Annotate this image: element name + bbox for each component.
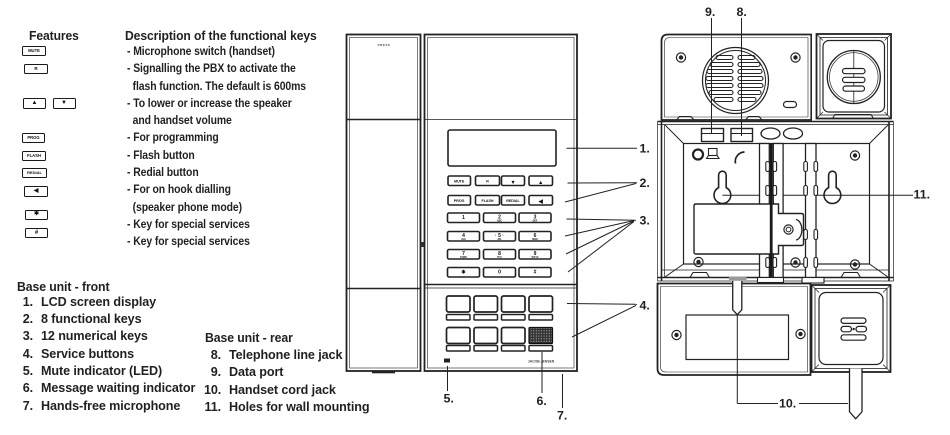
svg-text:8.: 8. xyxy=(737,5,747,19)
svg-text:JKL: JKL xyxy=(497,238,502,241)
svg-text:4.: 4. xyxy=(640,298,650,312)
svg-text:#: # xyxy=(534,270,537,276)
svg-text:TUV: TUV xyxy=(497,256,502,259)
svg-text:◀: ◀ xyxy=(538,199,543,205)
svg-text:REDIAL: REDIAL xyxy=(506,199,520,203)
svg-text:PRESS: PRESS xyxy=(378,43,391,47)
svg-text:10.: 10. xyxy=(779,397,796,411)
svg-text:5.: 5. xyxy=(444,392,454,406)
svg-text:PQRS: PQRS xyxy=(460,256,467,259)
svg-text:ABC: ABC xyxy=(497,220,502,223)
svg-text:0: 0 xyxy=(498,270,501,276)
svg-text:9.: 9. xyxy=(705,5,715,19)
svg-text:JACOB JENSEN: JACOB JENSEN xyxy=(528,360,555,364)
svg-text:WXYZ: WXYZ xyxy=(532,256,539,259)
svg-text:✱: ✱ xyxy=(461,270,466,276)
svg-text:▼: ▼ xyxy=(510,180,515,186)
svg-text:MNO: MNO xyxy=(532,238,538,241)
svg-text:DEF: DEF xyxy=(533,220,538,223)
svg-text:3.: 3. xyxy=(640,214,650,228)
svg-text:1: 1 xyxy=(462,215,465,221)
svg-text:1.: 1. xyxy=(640,142,650,156)
svg-text:6.: 6. xyxy=(537,394,547,408)
svg-text:GHI: GHI xyxy=(461,238,466,241)
svg-text:FLASH: FLASH xyxy=(482,199,494,203)
svg-text:PROG: PROG xyxy=(454,199,465,203)
svg-text:▲: ▲ xyxy=(538,180,543,186)
svg-text:2.: 2. xyxy=(640,176,650,190)
svg-text:7.: 7. xyxy=(557,409,567,423)
svg-text:11.: 11. xyxy=(914,188,931,202)
svg-text:R: R xyxy=(486,179,489,183)
svg-text:MUTE: MUTE xyxy=(454,179,465,183)
